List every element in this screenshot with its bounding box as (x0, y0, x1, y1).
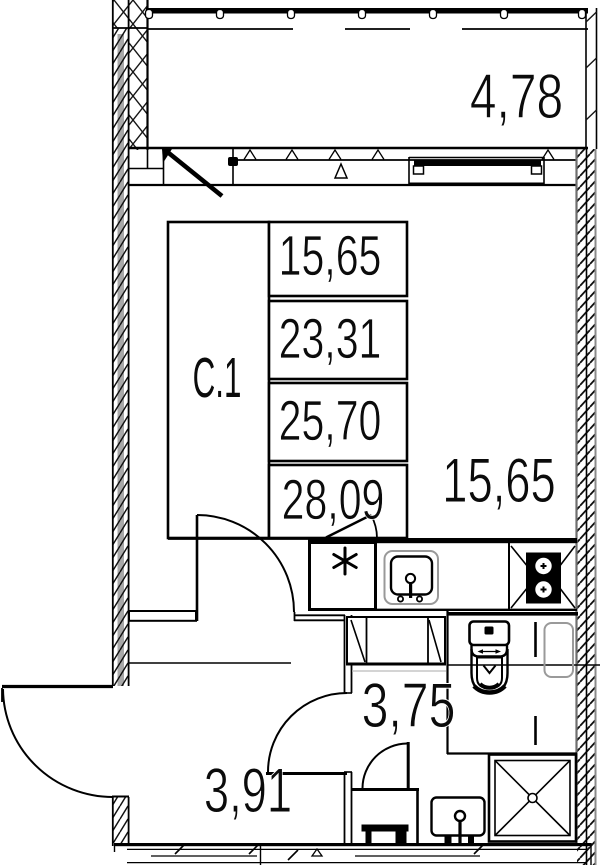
svg-text:23,31: 23,31 (279, 306, 382, 370)
svg-text:4,78: 4,78 (470, 61, 563, 132)
svg-text:28,09: 28,09 (282, 467, 385, 531)
svg-text:С.1: С.1 (193, 345, 242, 409)
svg-text:15,65: 15,65 (442, 445, 555, 516)
svg-text:15,65: 15,65 (279, 223, 382, 287)
svg-text:25,70: 25,70 (279, 388, 382, 452)
svg-text:3,91: 3,91 (204, 755, 292, 826)
svg-text:3,75: 3,75 (362, 670, 456, 741)
